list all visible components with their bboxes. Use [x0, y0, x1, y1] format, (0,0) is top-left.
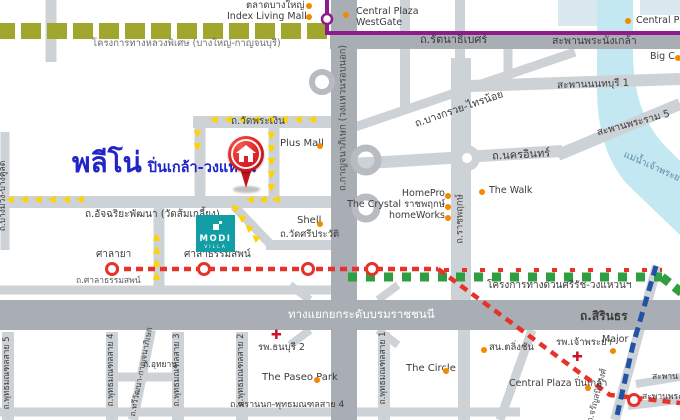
- bridge-label-2: สะพานพระ: [642, 393, 680, 403]
- central-westgate-label: Central Plaza WestGate: [356, 7, 422, 28]
- major-label: Major: [602, 335, 628, 346]
- purple-line-station-icon: [322, 14, 332, 24]
- red-line-station-icon: [199, 264, 210, 275]
- nakhon-in-roundabout: [454, 145, 480, 171]
- route-arrow-icon: ◀: [294, 115, 302, 125]
- sirindhorn-road-label: ถ.สิรินธร: [580, 310, 628, 323]
- sirat-expressway-tail: [662, 277, 680, 293]
- si-rat-expressway-label: โครงการทางด่วนศรีรัช-วงแหวนฯ: [487, 280, 631, 291]
- red-line-station-icon: [303, 264, 314, 275]
- big-c-label: Big C: [650, 52, 675, 63]
- red-line-station-icon: [107, 264, 118, 275]
- route-arrow-icon: ◀: [308, 115, 316, 125]
- wat-si-prawat-road-label: ถ.วัดศรีประวัติ: [280, 230, 339, 241]
- pin-ball: [228, 136, 264, 172]
- route-arrow-icon: ◀: [151, 272, 161, 280]
- the-walk-label: The Walk: [489, 186, 532, 197]
- route-arrow-icon: ◀: [34, 195, 42, 205]
- route-arrow-icon: ◀: [20, 195, 28, 205]
- modi-villa-logo: MODI VILLA: [196, 215, 235, 252]
- route-arrow-icon: ◀: [210, 115, 218, 125]
- route-arrow-icon: ◀: [246, 195, 254, 205]
- poi-dot-icon: [445, 193, 451, 199]
- poi-dot-icon: [625, 18, 631, 24]
- poi-dot-icon: [317, 143, 323, 149]
- red-line-station-icon: [629, 395, 640, 406]
- red-line-station-icon: [367, 264, 378, 275]
- poi-dot-icon: [610, 348, 616, 354]
- sala-thammasop-road-label: ถ.ศาลาธรรมสพน์: [76, 277, 141, 287]
- project-location-pin: [228, 136, 265, 194]
- phranangklao-bridge-label: สะพานพระนั่งเกล้า: [552, 36, 637, 48]
- modi-logo-text: MODI: [196, 234, 235, 245]
- motorway-project-label: โครงการทางหลวงพิเศษ (บางใหญ่-กาญจนบุรี): [92, 39, 281, 50]
- route-arrow-icon: ◀: [151, 233, 161, 241]
- poi-dot-icon: [317, 221, 323, 227]
- poi-dot-icon: [343, 12, 349, 18]
- poi-dot-icon: [481, 347, 487, 353]
- uthayan-road-label: ถ.อุทยาน: [143, 361, 177, 371]
- index-living-mall-label: Index Living Mall: [227, 12, 307, 23]
- wat-phra-ngoen-road-label: ถ.วัดพระเงิน: [231, 116, 285, 127]
- route-arrow-icon: ◀: [48, 195, 56, 205]
- poi-dot-icon: [314, 377, 320, 383]
- ratchaphruek-road-label: ถ.ราชพฤกษ์: [456, 194, 467, 244]
- poi-dot-icon: [585, 385, 591, 391]
- rattanathibet-road-label: ถ.รัตนาธิเบศร์: [420, 34, 487, 46]
- route-arrow-icon: ◀: [267, 171, 277, 179]
- kanchanaphisek-road-label: ถ.กาญจนาภิเษก (วงแหวนรอบนอก): [339, 45, 350, 191]
- poi-dot-icon: [479, 189, 485, 195]
- poi-dot-icon: [445, 215, 451, 221]
- poi-dot-icon: [306, 14, 312, 20]
- borom-interchange-label: ทางแยกยกระดับบรมราชชนนี: [288, 308, 435, 321]
- route-arrow-icon: ◀: [193, 130, 203, 138]
- thonburi2-hospital-label: รพ.ธนบุรี 2: [258, 343, 305, 354]
- poi-dot-icon: [443, 368, 449, 374]
- sai2-road-label: ถ.พุทธมณฑลสาย 2: [237, 333, 247, 406]
- route-arrow-icon: ◀: [151, 246, 161, 254]
- route-arrow-icon: ◀: [76, 195, 84, 205]
- poi-dot-icon: [445, 204, 451, 210]
- route-arrow-icon: ◀: [267, 158, 277, 166]
- chaophraya-cross-icon: ✚: [572, 351, 583, 366]
- poi-dot-icon: [306, 3, 312, 9]
- route-arrow-icon: ◀: [151, 259, 161, 267]
- paseo-park-label: The Paseo Park: [262, 372, 338, 383]
- project-name: พลีโน่: [72, 146, 142, 179]
- sai4-road-label: ถ.พุทธมณฑลสาย 4: [107, 333, 117, 406]
- map: พลีโน่ปิ่นเกล้า-วงแหวน MODI VILLA ตลาดบา…: [0, 0, 680, 420]
- modi-logo-icon: [213, 224, 219, 230]
- sai5-road-label: ถ.พุทธมณฑลสาย 5: [3, 336, 13, 409]
- thonburi2-cross-icon: ✚: [271, 329, 282, 344]
- sai1-road-label: ถ.พุทธมณฑลสาย 1: [379, 331, 389, 404]
- route-arrow-icon: ◀: [272, 195, 280, 205]
- central-plaza-tr-label: Central Plaz: [636, 16, 680, 27]
- route-arrow-icon: ◀: [62, 195, 70, 205]
- route-arrow-icon: ◀: [267, 184, 277, 192]
- route-arrow-icon: ◀: [267, 145, 277, 153]
- homeworks-label: homeWorks: [389, 211, 445, 222]
- route-arrow-icon: ◀: [267, 132, 277, 140]
- phran-nok-road-label: ถ.พรานนก-พุทธมณฑลสาย 4: [230, 400, 344, 410]
- central-pinklao-label: Central Plaza ปิ่นเกล้า: [509, 379, 607, 390]
- poi-dot-icon: [675, 55, 680, 61]
- salaya-station-label: ศาลายา: [96, 249, 131, 260]
- route-arrow-icon: ◀: [259, 195, 267, 205]
- bang-muang-road-label: ถ.บางม่วง-บางคูลัด: [0, 161, 9, 232]
- bridge-label-1: สะพาน: [652, 373, 678, 383]
- modi-logo-subtext: VILLA: [196, 245, 235, 250]
- house-icon: [236, 145, 256, 162]
- talingchan-police-label: สน.ตลิ่งชัน: [489, 343, 534, 354]
